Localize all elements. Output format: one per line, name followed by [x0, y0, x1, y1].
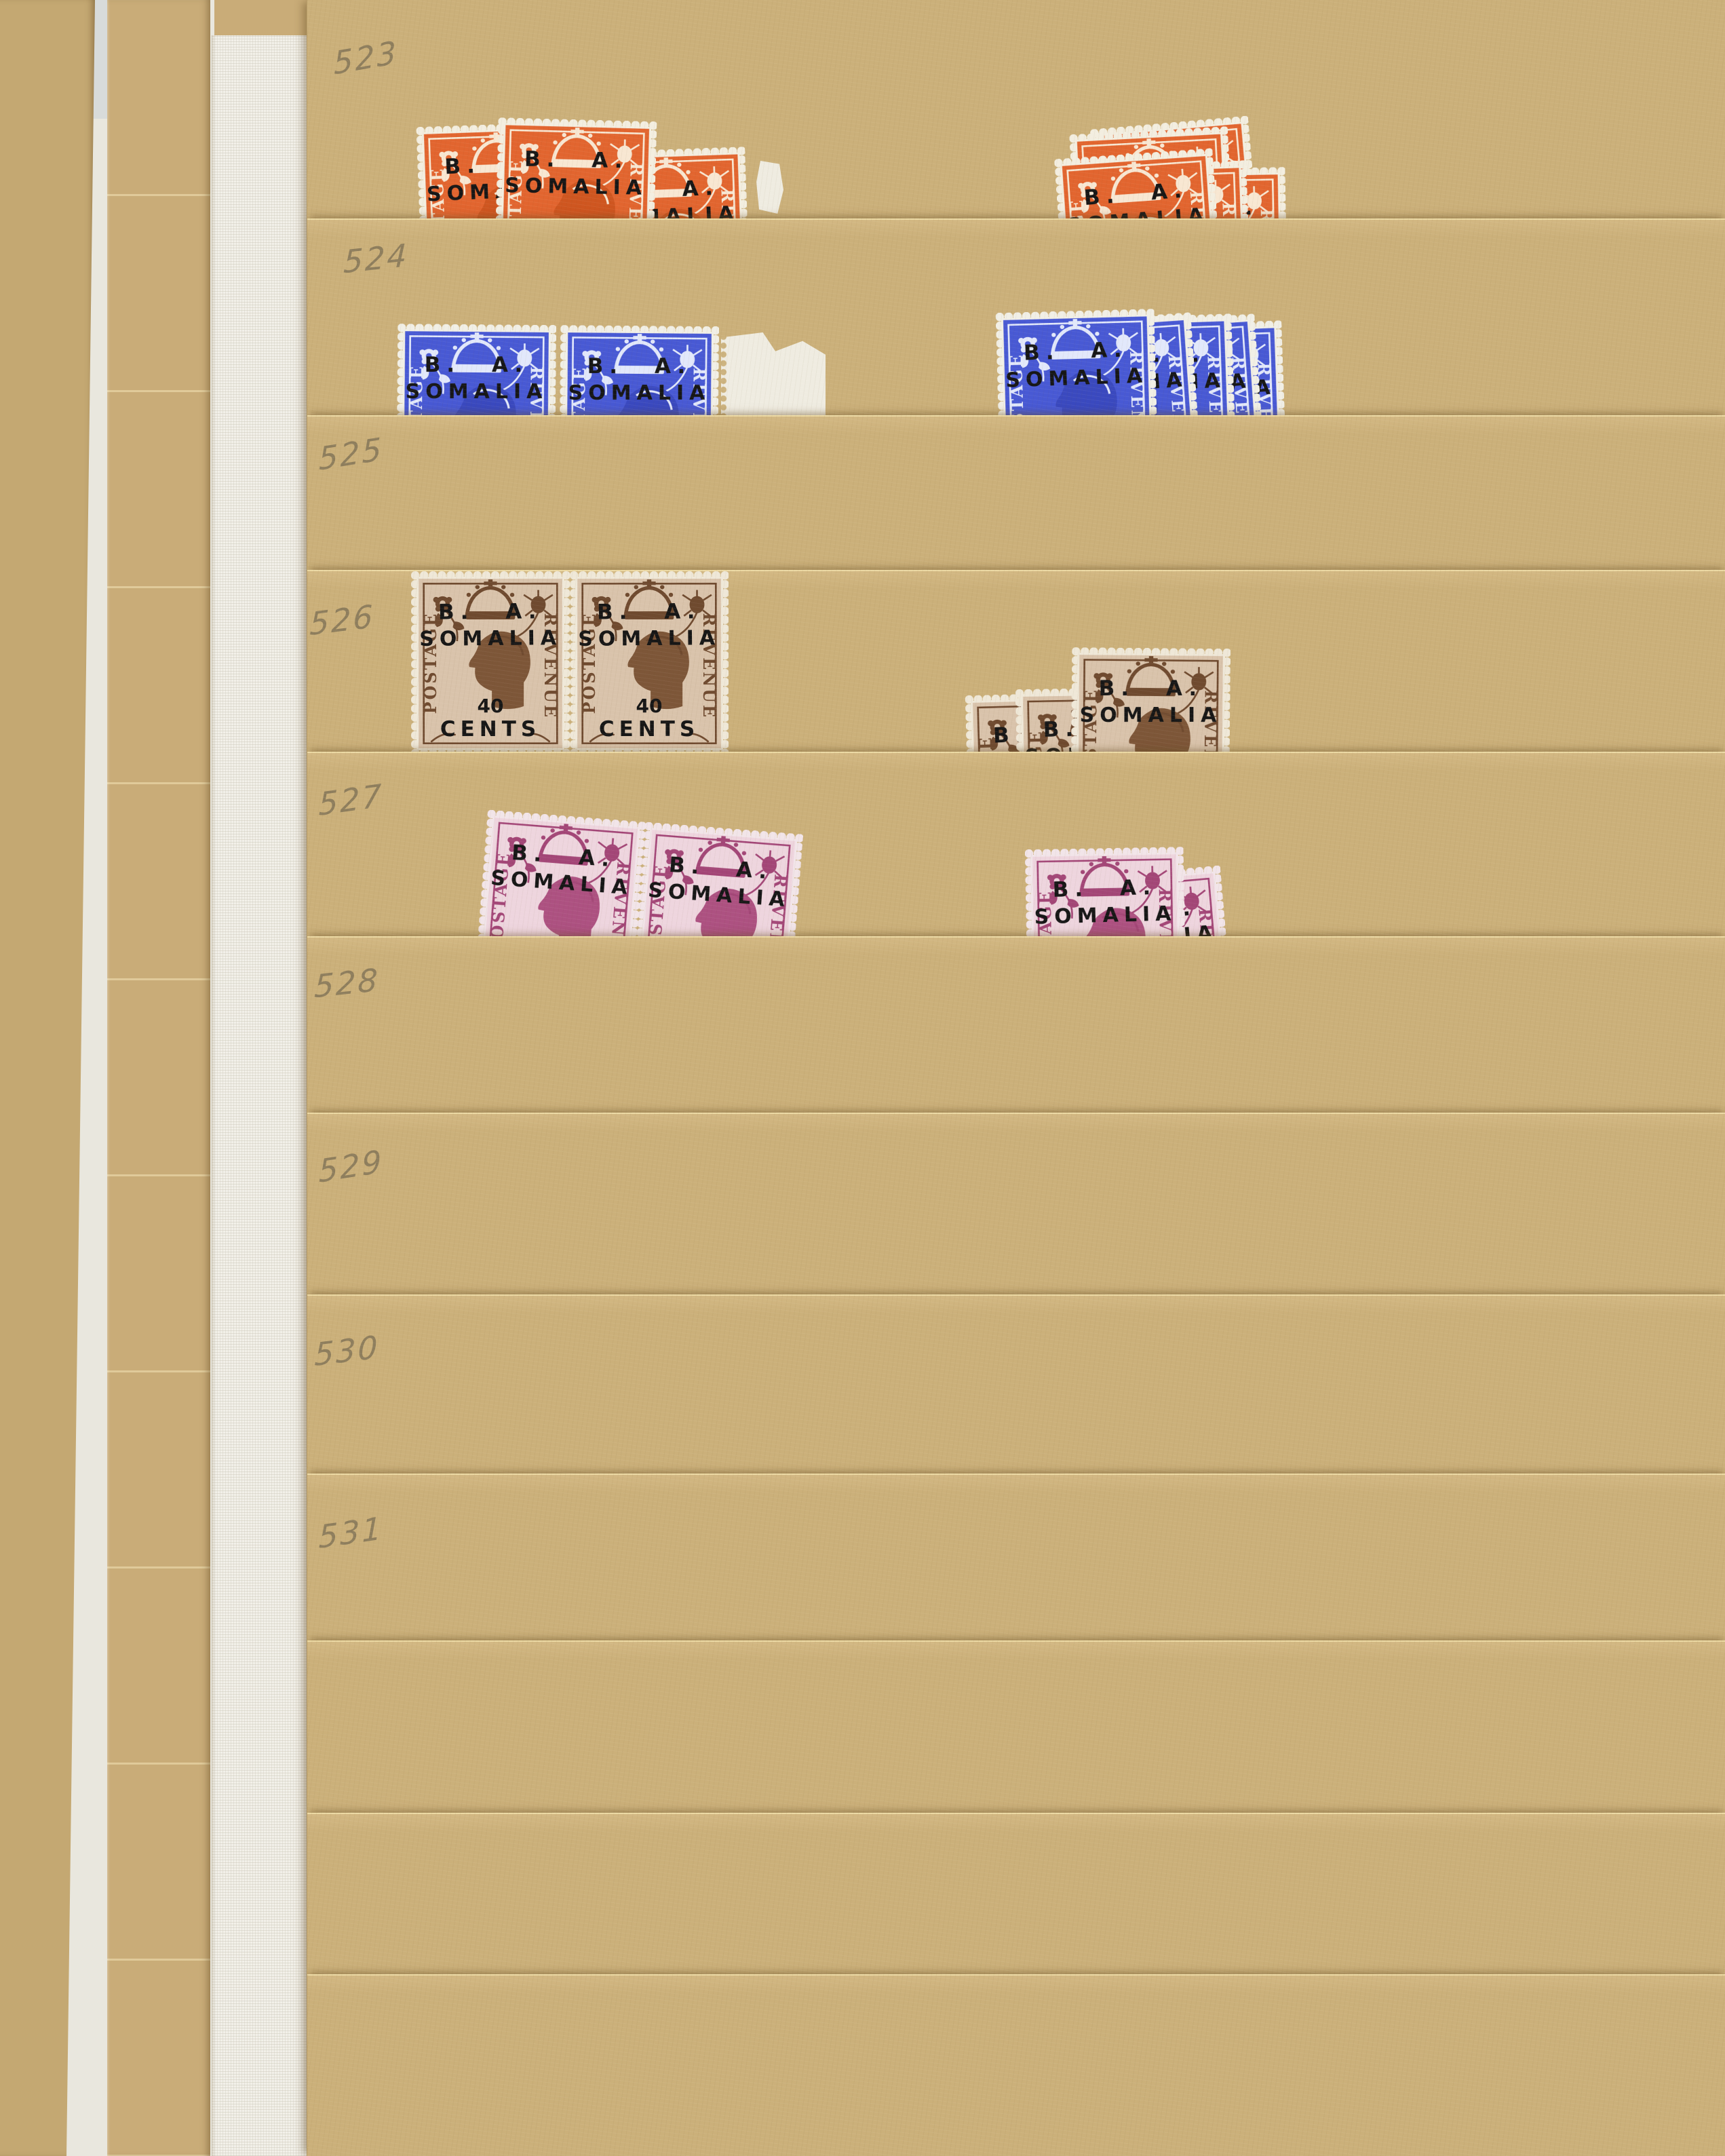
row-label: 530	[314, 1328, 380, 1373]
row-label: 527	[318, 777, 383, 823]
pocket-strip	[307, 1813, 1725, 1976]
pocket-strip: 524	[307, 218, 1725, 417]
linen-hinge-strip	[212, 35, 307, 2156]
page-edge-behind-2	[107, 0, 210, 2156]
pocket-strip	[307, 1974, 1725, 2156]
row-label: 523	[333, 33, 399, 81]
pocket-strip: 530	[307, 1294, 1725, 1475]
pocket-strip: 523	[307, 0, 1725, 218]
pocket-strip: 526	[307, 570, 1725, 753]
pocket-strip: 527	[307, 752, 1725, 938]
page-edge-behind-3	[214, 0, 309, 39]
row-label: 526	[309, 598, 375, 642]
stockbook-photo: 523 524 525 526 527 528 529 530 531	[0, 0, 1725, 2156]
row-label: 525	[318, 430, 384, 478]
pocket-strip: 529	[307, 1113, 1725, 1296]
row-label: 529	[318, 1142, 384, 1190]
row-label: 528	[313, 961, 380, 1005]
pocket-strip: 525	[307, 415, 1725, 571]
pocket-strip: 528	[307, 936, 1725, 1114]
pocket-strip	[307, 1640, 1725, 1814]
row-label: 531	[318, 1509, 383, 1556]
row-label: 524	[343, 237, 409, 281]
album-page: 523 524 525 526 527 528 529 530 531	[307, 0, 1725, 2156]
pocket-strip: 531	[307, 1474, 1725, 1642]
